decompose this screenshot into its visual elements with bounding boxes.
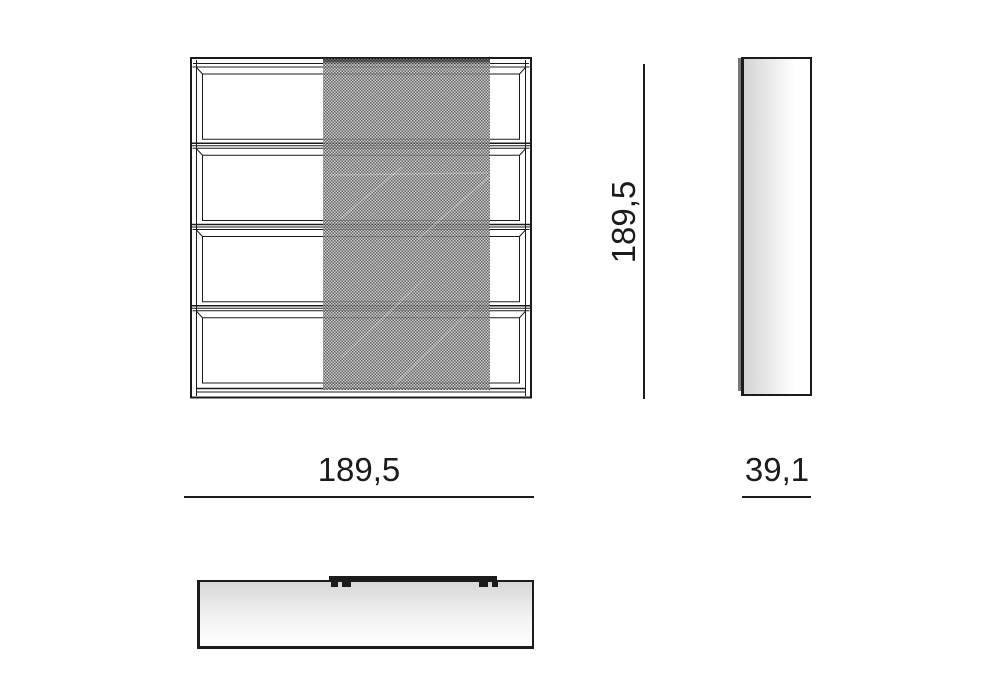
depth-dimension-line [742,496,811,498]
top-panel [197,580,534,649]
height-dimension-line [643,64,645,399]
drawing-canvas: 189,5 189,5 39,1 [0,0,1000,700]
side-view [737,56,815,400]
top-view [197,576,535,650]
sliding-track-bar [329,576,497,582]
width-dimension-label: 189,5 [184,452,534,488]
height-dimension-label: 189,5 [606,162,642,282]
side-panel [741,57,812,396]
depth-dimension-label: 39,1 [717,452,837,488]
width-dimension-line [184,496,534,498]
track-clip [331,582,338,587]
track-clip [479,582,488,587]
mesh-panel [323,59,490,391]
track-clip [342,582,351,587]
track-clip [492,582,498,587]
front-view [190,57,532,399]
